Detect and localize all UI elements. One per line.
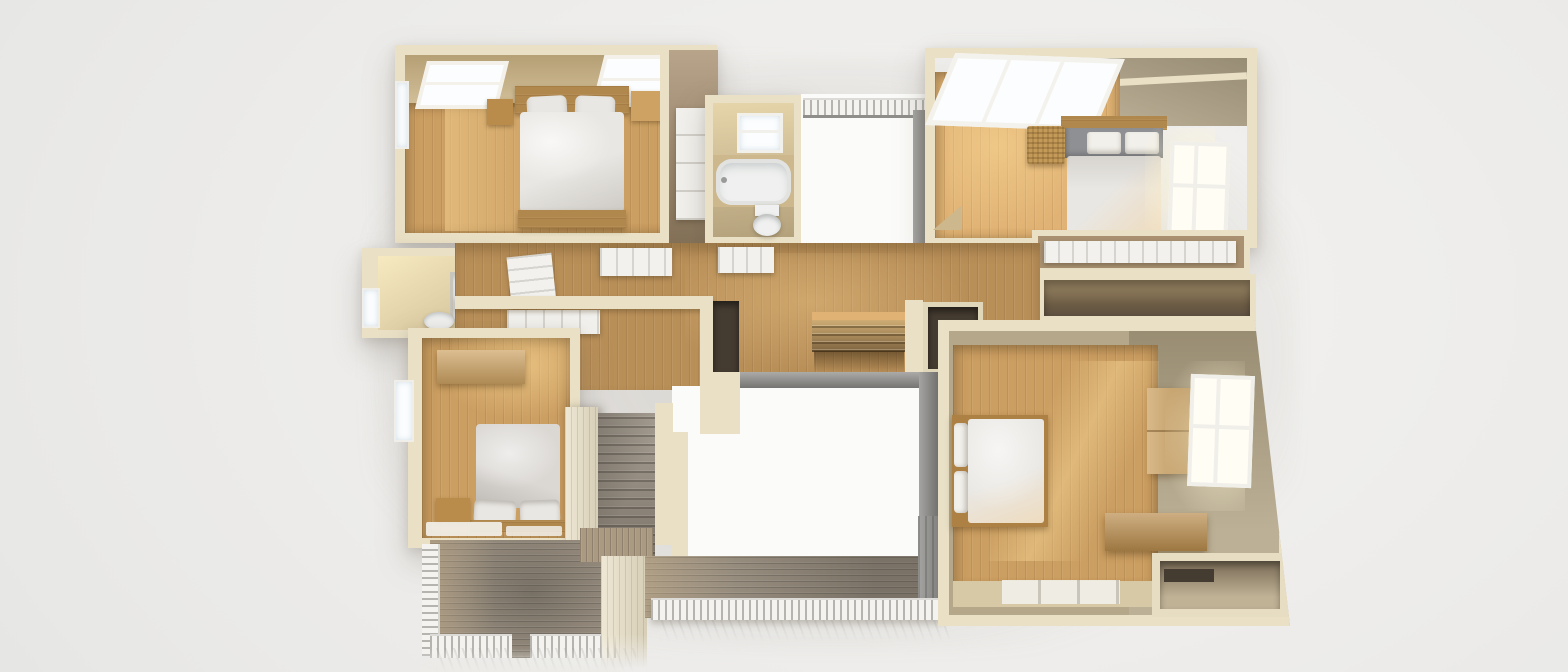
window-mullion xyxy=(740,130,780,133)
window-mullion xyxy=(1191,146,1198,234)
skylight-mullion xyxy=(981,60,1011,122)
bed-duvet xyxy=(968,419,1044,523)
nook-dark-slot xyxy=(1164,569,1214,582)
right-wall-window xyxy=(1187,374,1255,488)
bathroom-ml-window xyxy=(362,288,380,328)
bed-footboard xyxy=(518,210,626,228)
hall-wall xyxy=(455,296,713,309)
dresser xyxy=(437,350,525,384)
open-door-panel xyxy=(600,248,672,276)
courtyard-void-center xyxy=(672,372,938,572)
white-rug xyxy=(1002,580,1120,604)
left-wall-window xyxy=(394,380,414,442)
bathtub xyxy=(716,159,791,205)
closet-ul-wall xyxy=(660,50,669,243)
wicker-basket xyxy=(1027,126,1065,164)
stair-side-wall-right xyxy=(655,403,673,545)
stairwell-shadow xyxy=(814,351,904,373)
skylight-mullion xyxy=(602,78,665,81)
double-bed xyxy=(470,424,566,532)
bathtub-faucet xyxy=(721,177,727,183)
nightstand xyxy=(436,498,470,522)
window-mullion xyxy=(1193,424,1249,430)
staircase-down xyxy=(812,312,905,352)
closet-open-dark xyxy=(1038,274,1256,322)
bed-pillow xyxy=(1087,132,1121,154)
sliding-door-panel xyxy=(1044,241,1236,263)
double-bed xyxy=(952,415,1048,527)
bedroom-upper-right xyxy=(925,48,1257,248)
left-wall-window xyxy=(395,81,409,149)
open-void-upper xyxy=(801,94,933,246)
bedroom-lower-right xyxy=(938,320,1290,626)
stair-top-landing xyxy=(812,312,905,320)
bathroom-window xyxy=(737,113,783,153)
closet-door-panel xyxy=(676,108,708,220)
nightstand xyxy=(487,99,513,125)
storage-nook xyxy=(1152,553,1288,617)
toilet xyxy=(751,205,785,237)
toilet-bowl xyxy=(753,214,781,236)
white-rug xyxy=(426,522,502,536)
bed-pillow xyxy=(954,423,968,467)
floor-plan-render-scene xyxy=(0,0,1568,672)
courtyard-deck-edge-top xyxy=(740,372,938,388)
courtyard-wall-upper-left xyxy=(700,372,740,434)
double-bed xyxy=(515,86,629,232)
void-railing xyxy=(803,98,929,118)
bed-duvet xyxy=(476,424,560,508)
window-mullion xyxy=(1173,183,1225,189)
hall-wall xyxy=(905,300,923,378)
skylight-mullion xyxy=(1035,62,1065,124)
balcony-railing xyxy=(651,598,943,620)
balcony-lower xyxy=(645,556,950,618)
railing-shadow xyxy=(660,620,950,642)
open-door-panel xyxy=(718,247,774,273)
courtyard-wall-left xyxy=(672,432,688,572)
bathroom-upper-middle xyxy=(705,95,802,245)
bed-pillow xyxy=(954,471,968,513)
white-rug xyxy=(506,526,562,536)
dark-closet-opening xyxy=(713,301,739,372)
bed-duvet xyxy=(520,112,624,212)
closet-sliding xyxy=(1032,230,1250,274)
storage-chest xyxy=(1105,513,1207,551)
right-wall-window xyxy=(1167,141,1230,239)
deck-pillar-wall xyxy=(601,556,647,668)
skylight-mullion xyxy=(425,82,500,85)
bedroom-lower-left xyxy=(408,328,580,548)
window-mullion xyxy=(1213,379,1221,483)
closets-middle-right xyxy=(1032,230,1256,322)
